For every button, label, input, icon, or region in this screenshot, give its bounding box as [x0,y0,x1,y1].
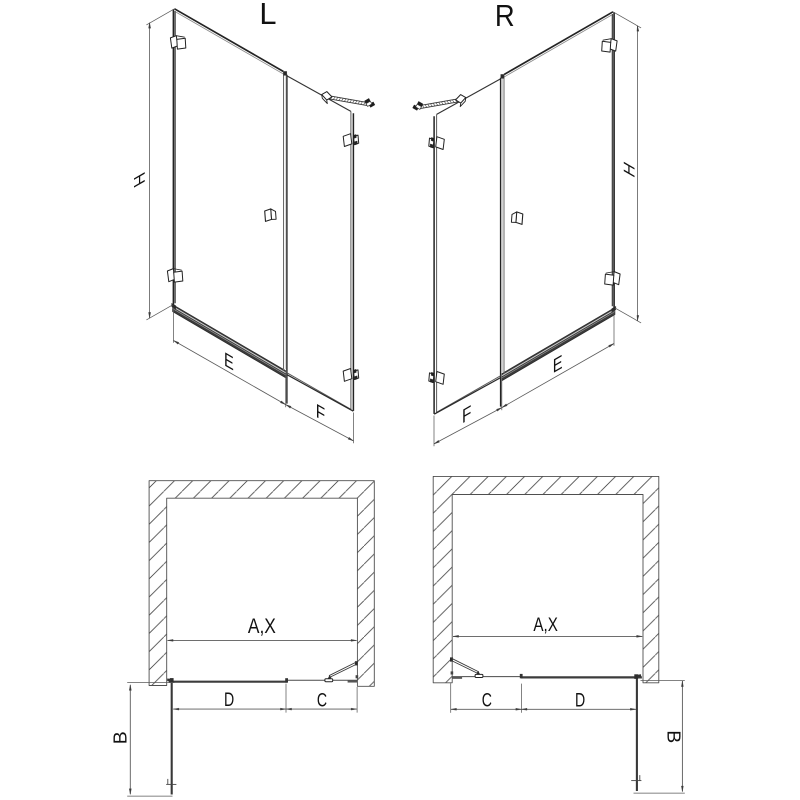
svg-text:L: L [259,0,276,31]
svg-text:A,X: A,X [248,615,276,638]
svg-text:C: C [317,690,327,711]
svg-text:R: R [495,0,515,33]
svg-text:D: D [224,690,234,711]
svg-text:D: D [575,691,585,712]
svg-text:A,X: A,X [533,615,558,636]
svg-text:C: C [482,691,492,712]
svg-text:B: B [663,730,683,743]
svg-text:B: B [110,731,130,744]
